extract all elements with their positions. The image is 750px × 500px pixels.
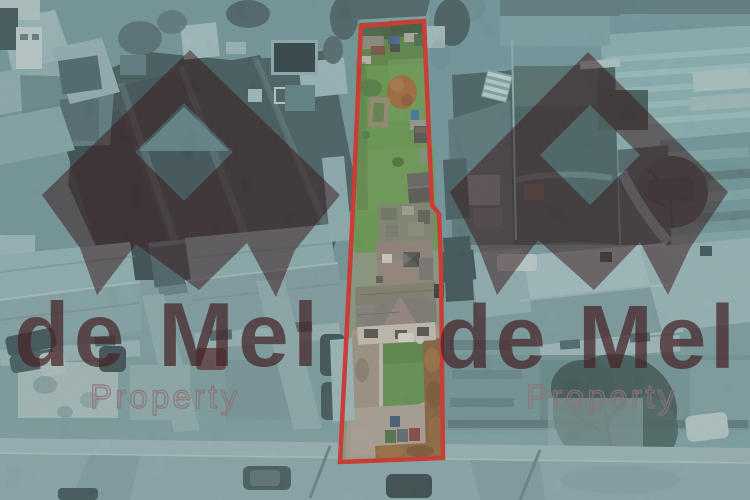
svg-text:de Mel: de Mel bbox=[14, 285, 322, 386]
svg-text:de Mel: de Mel bbox=[437, 288, 739, 388]
svg-text:Property: Property bbox=[90, 378, 240, 415]
svg-text:Property: Property bbox=[526, 378, 678, 415]
